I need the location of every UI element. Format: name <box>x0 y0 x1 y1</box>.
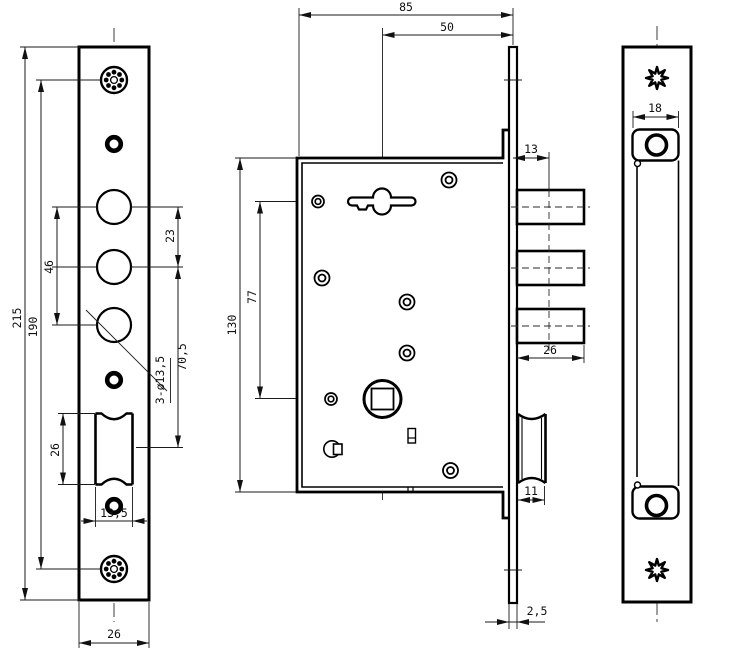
rect-detail <box>408 429 416 444</box>
dim-screw-centers: 190 <box>26 317 40 338</box>
lock-technical-drawing: 215 190 46 26 23 70,5 3-ø13,5 13,5 26 <box>0 0 733 659</box>
lock-case-outline <box>297 130 509 518</box>
dim-latch-cutout-width: 13,5 <box>100 506 128 520</box>
faceplate-front-view: 215 190 46 26 23 70,5 3-ø13,5 13,5 26 <box>10 28 189 648</box>
cylinder-hole <box>97 308 131 342</box>
dim-hole-callout: 3-ø13,5 <box>153 356 167 404</box>
deadbolt <box>511 152 590 352</box>
dim-backset: 50 <box>440 20 454 34</box>
dim-plate-width: 26 <box>107 627 121 641</box>
dim-hole-span-outer: 46 <box>42 260 56 274</box>
latch-roller <box>518 414 546 483</box>
torx-screw-icon <box>101 67 127 93</box>
dim-body-height: 130 <box>225 315 239 336</box>
dim-latch-cutout-height: 26 <box>48 443 62 457</box>
dim-bolt-offset: 13 <box>524 142 538 156</box>
cylinder-hole <box>97 190 131 224</box>
dim-latch-center-offset: 70,5 <box>175 343 189 371</box>
dim-latch-projection: 11 <box>524 484 538 498</box>
dim-hole-span-inner: 23 <box>163 229 177 243</box>
torx-screw-icon <box>101 556 127 582</box>
lock-body-side-view: 85 50 13 26 130 77 11 2,5 <box>225 0 590 629</box>
star-screw-icon <box>646 559 668 581</box>
dim-bolt-length: 26 <box>543 343 557 357</box>
cylinder-hole <box>97 250 131 284</box>
spindle-follower <box>364 381 401 418</box>
dim-body-depth: 85 <box>399 0 413 14</box>
dim-overall-height: 215 <box>10 308 24 329</box>
star-screw-icon <box>646 67 668 89</box>
dim-slot-width: 18 <box>648 101 662 115</box>
stop-pin-detail <box>324 441 342 457</box>
strike-plate-view: 18 <box>623 26 691 624</box>
dim-faceplate-thickness: 2,5 <box>527 604 548 618</box>
dim-key-to-spindle: 77 <box>245 290 259 304</box>
